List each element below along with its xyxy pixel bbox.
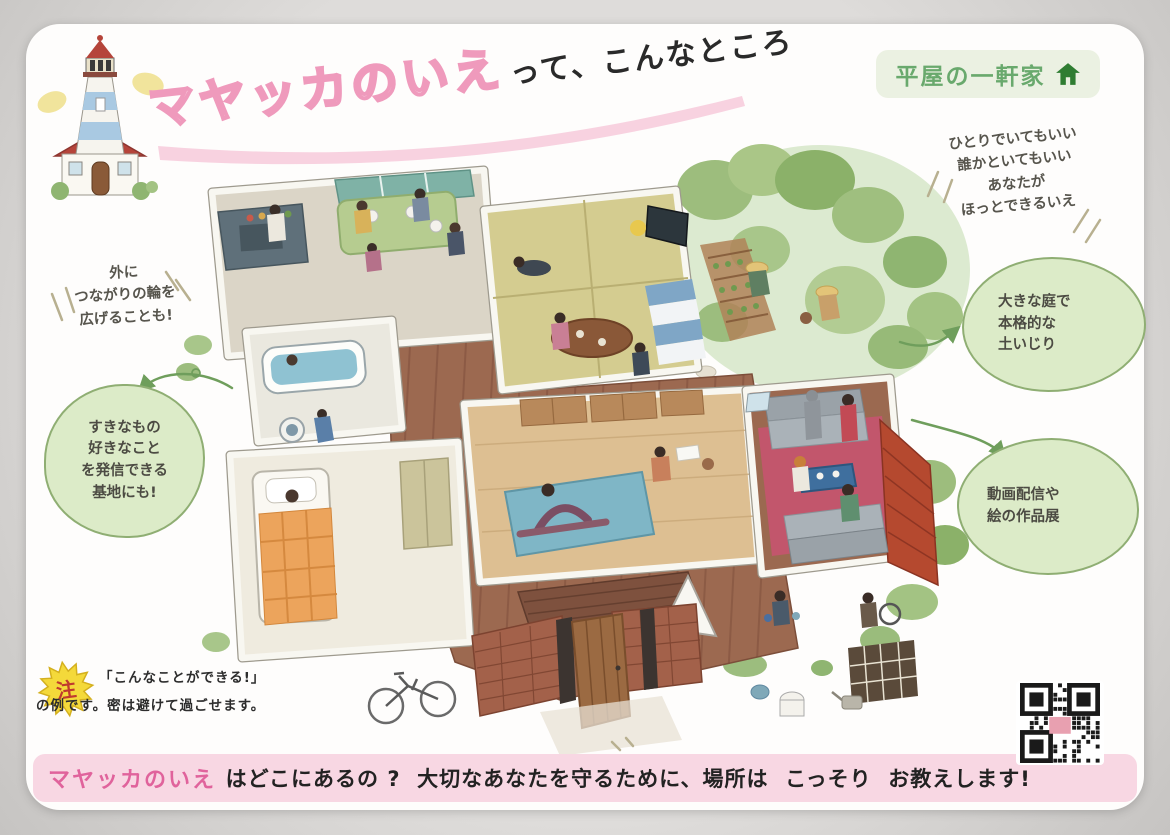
room-bathroom bbox=[246, 320, 402, 443]
bubble-line: 動画配信や bbox=[987, 485, 1137, 507]
room-bedroom bbox=[230, 442, 470, 658]
room-living bbox=[746, 378, 938, 585]
footnote-line1: 「こんなことができる!」 bbox=[99, 666, 265, 686]
banner-text: はどこにあるの ? 大切なあなたを守るために、場所は こっそり お教えします! bbox=[226, 763, 1031, 793]
bubble-line: 大きな庭で bbox=[998, 292, 1144, 314]
lighthouse-logo bbox=[34, 35, 166, 200]
base-bubble: すきなもの 好きなこと を発信できる 基地にも! bbox=[44, 384, 205, 538]
bicycle bbox=[369, 673, 455, 723]
house-type-badge: 平屋の一軒家 bbox=[876, 50, 1100, 98]
bubble-line: すきなもの bbox=[46, 418, 203, 440]
room-tatami bbox=[484, 190, 706, 390]
bubble-line: 本格的な bbox=[998, 314, 1144, 336]
footnote-line2: の例です。密は避けて過ごせます。 bbox=[36, 694, 265, 714]
bubble-line: 基地にも! bbox=[46, 483, 203, 505]
studio-bubble: 動画配信や 絵の作品展 bbox=[957, 438, 1139, 575]
qr-pattern bbox=[1020, 683, 1100, 763]
bubble-line: を発信できる bbox=[46, 461, 203, 483]
qr-code bbox=[1016, 681, 1104, 765]
banner-highlight: マヤッカのいえ bbox=[48, 762, 226, 794]
bubble-line: 土いじり bbox=[998, 335, 1144, 357]
bubble-line: 好きなこと bbox=[46, 439, 203, 461]
bottom-banner: マヤッカのいえ はどこにあるの ? 大切なあなたを守るために、場所は こっそり … bbox=[33, 754, 1137, 802]
note-left: 外に つながりの輪を 広げることも! bbox=[43, 258, 206, 334]
note-top-right: ひとりでいてもいい 誰かといてもいい あなたが ほっとできるいえ bbox=[914, 120, 1116, 227]
room-yoga bbox=[464, 390, 758, 582]
bubble-line: 絵の作品展 bbox=[987, 507, 1137, 529]
home-icon bbox=[1055, 62, 1081, 86]
garden-props bbox=[751, 660, 862, 716]
house-type-label: 平屋の一軒家 bbox=[896, 57, 1046, 91]
